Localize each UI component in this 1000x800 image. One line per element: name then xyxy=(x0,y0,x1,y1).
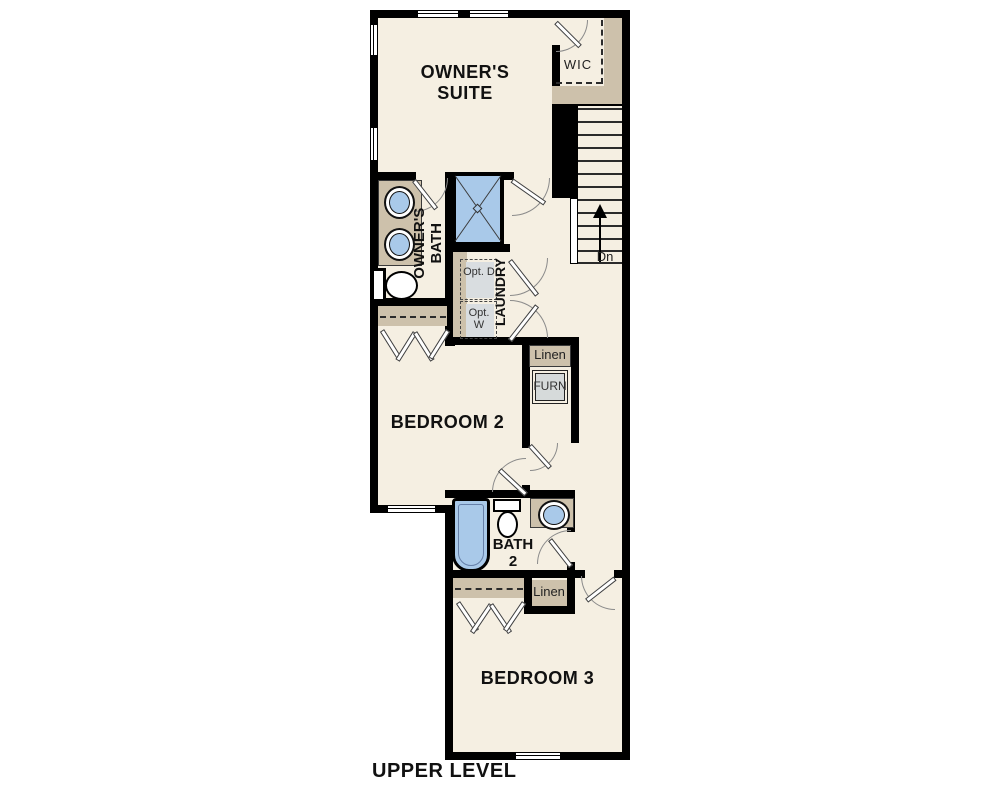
wall-left xyxy=(370,10,378,513)
stair-tread xyxy=(578,121,622,123)
owners-toilet-tank xyxy=(371,268,386,302)
window-left-1 xyxy=(370,25,378,55)
wall-right xyxy=(622,10,630,760)
bath2-sink xyxy=(538,500,570,530)
bath2-toilet-bowl xyxy=(497,511,518,538)
stair-tread xyxy=(578,160,622,162)
bathtub xyxy=(452,498,490,572)
bedroom2-closet-rod-dash xyxy=(380,316,446,318)
opt-washer-label: Opt. W xyxy=(462,307,496,331)
stairs-down-label: Dn xyxy=(586,250,624,265)
bath2-label: BATH 2 xyxy=(488,536,538,571)
owners-bath-label: OWNER'S BATH xyxy=(411,203,446,283)
stair-handrail xyxy=(570,198,578,264)
bedroom3-label: BEDROOM 3 xyxy=(455,668,620,689)
stair-tread xyxy=(578,134,622,136)
window-left-2 xyxy=(370,128,378,160)
wall-bath-top xyxy=(378,172,416,180)
wall-bedroom3-door-stub-right xyxy=(614,570,622,578)
wall-utility-closet-right xyxy=(571,337,579,443)
wall-linen-lower-bottom xyxy=(524,606,575,614)
plan-title: UPPER LEVEL xyxy=(372,760,592,783)
wall-stair-block xyxy=(552,106,578,198)
floor-plan: Dn Opt. D Opt. W Linen FURN Linen xyxy=(0,0,1000,800)
bathtub-inner-line xyxy=(458,504,484,566)
wic-shelf-bottom xyxy=(552,86,622,104)
window-bedroom3 xyxy=(516,752,560,760)
linen-upper-label: Linen xyxy=(529,348,571,363)
window-top-1 xyxy=(418,10,458,18)
bedroom3-closet-rod-dash xyxy=(455,588,523,590)
stair-tread xyxy=(578,186,622,188)
stair-arrow-head-icon xyxy=(593,204,607,218)
opt-dryer-label: Opt. D xyxy=(462,266,496,278)
stair-tread xyxy=(578,108,622,110)
window-bedroom2 xyxy=(388,505,435,513)
wic-rod-dash-horizontal xyxy=(556,82,602,84)
wic-shelf-right xyxy=(604,18,622,86)
wic-floor-edge xyxy=(552,104,630,106)
linen-lower-label: Linen xyxy=(528,585,570,600)
furnace-label: FURN xyxy=(532,380,568,393)
wic-label: WIC xyxy=(556,58,600,73)
stair-tread xyxy=(578,199,622,201)
owners-suite-label: OWNER'S SUITE xyxy=(395,62,535,103)
bedroom2-label: BEDROOM 2 xyxy=(375,412,520,433)
laundry-label: LAUNDRY xyxy=(492,247,508,337)
stair-tread xyxy=(578,147,622,149)
wic-rod-dash-vertical xyxy=(601,20,603,84)
stair-tread xyxy=(578,173,622,175)
window-top-2 xyxy=(470,10,508,18)
